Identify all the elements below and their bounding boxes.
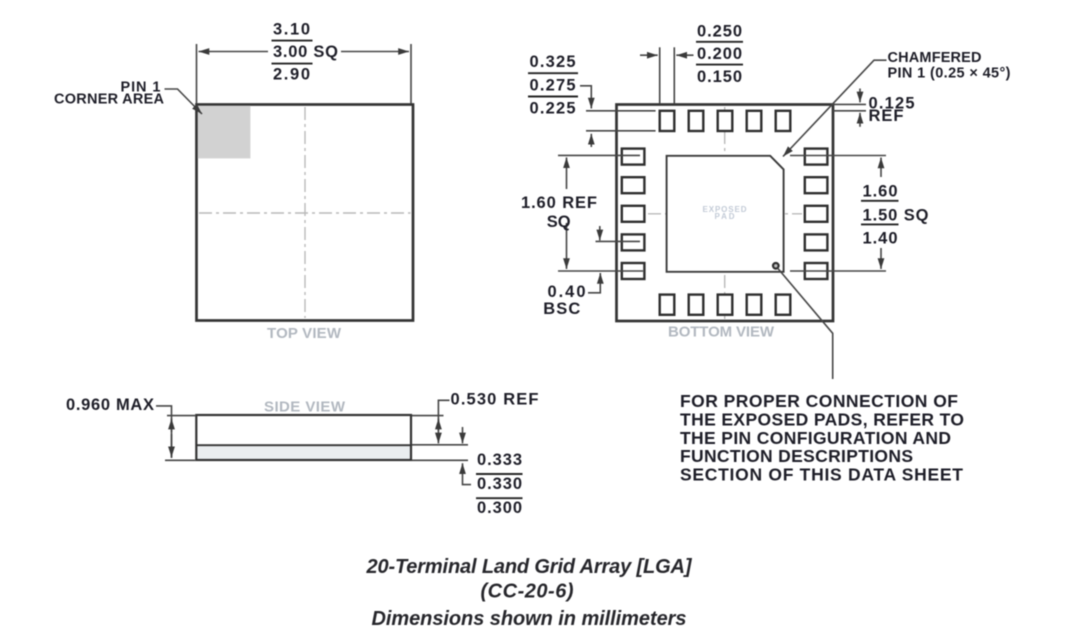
- svg-text:CORNER AREA: CORNER AREA: [54, 92, 165, 108]
- svg-text:0.200: 0.200: [697, 45, 742, 63]
- svg-text:PAD: PAD: [715, 212, 735, 221]
- svg-text:0.150: 0.150: [697, 68, 742, 86]
- svg-text:SECTION OF THIS DATA SHEET: SECTION OF THIS DATA SHEET: [680, 464, 963, 484]
- svg-text:3.00 SQ: 3.00 SQ: [273, 43, 338, 61]
- svg-text:2.90: 2.90: [273, 66, 310, 84]
- svg-text:0.530 REF: 0.530 REF: [451, 391, 539, 409]
- svg-text:BOTTOM VIEW: BOTTOM VIEW: [668, 324, 775, 341]
- svg-text:(CC-20-6): (CC-20-6): [481, 581, 574, 603]
- svg-text:0.250: 0.250: [697, 22, 742, 40]
- svg-text:1.60 REF: 1.60 REF: [521, 194, 597, 212]
- svg-text:PIN 1 (0.25 × 45°): PIN 1 (0.25 × 45°): [888, 66, 1011, 82]
- svg-text:1.40: 1.40: [863, 229, 898, 247]
- svg-text:0.225: 0.225: [530, 100, 576, 118]
- svg-text:BSC: BSC: [543, 300, 580, 318]
- svg-text:Dimensions shown in millimeter: Dimensions shown in millimeters: [372, 608, 687, 630]
- svg-text:20-Terminal Land Grid Array [L: 20-Terminal Land Grid Array [LGA]: [366, 556, 693, 578]
- svg-text:3.10: 3.10: [273, 21, 310, 39]
- svg-text:0.333: 0.333: [477, 451, 522, 469]
- svg-text:0.960 MAX: 0.960 MAX: [66, 396, 154, 414]
- svg-text:REF: REF: [869, 107, 904, 125]
- svg-text:SQ: SQ: [547, 213, 571, 231]
- svg-text:SIDE VIEW: SIDE VIEW: [264, 399, 346, 416]
- svg-text:THE EXPOSED PADS, REFER TO: THE EXPOSED PADS, REFER TO: [680, 410, 964, 430]
- svg-text:THE PIN CONFIGURATION AND: THE PIN CONFIGURATION AND: [680, 428, 951, 448]
- svg-text:0.330: 0.330: [477, 475, 522, 493]
- svg-text:0.325: 0.325: [530, 53, 576, 71]
- svg-text:0.40: 0.40: [548, 283, 586, 301]
- svg-text:TOP VIEW: TOP VIEW: [267, 325, 342, 342]
- svg-text:1.60: 1.60: [863, 183, 898, 201]
- svg-text:FUNCTION DESCRIPTIONS: FUNCTION DESCRIPTIONS: [680, 446, 913, 466]
- svg-text:CHAMFERED: CHAMFERED: [888, 50, 982, 66]
- svg-text:0.300: 0.300: [477, 499, 522, 517]
- svg-text:FOR PROPER CONNECTION OF: FOR PROPER CONNECTION OF: [680, 391, 958, 411]
- svg-text:1.50 SQ: 1.50 SQ: [863, 207, 929, 225]
- svg-text:0.275: 0.275: [530, 76, 576, 94]
